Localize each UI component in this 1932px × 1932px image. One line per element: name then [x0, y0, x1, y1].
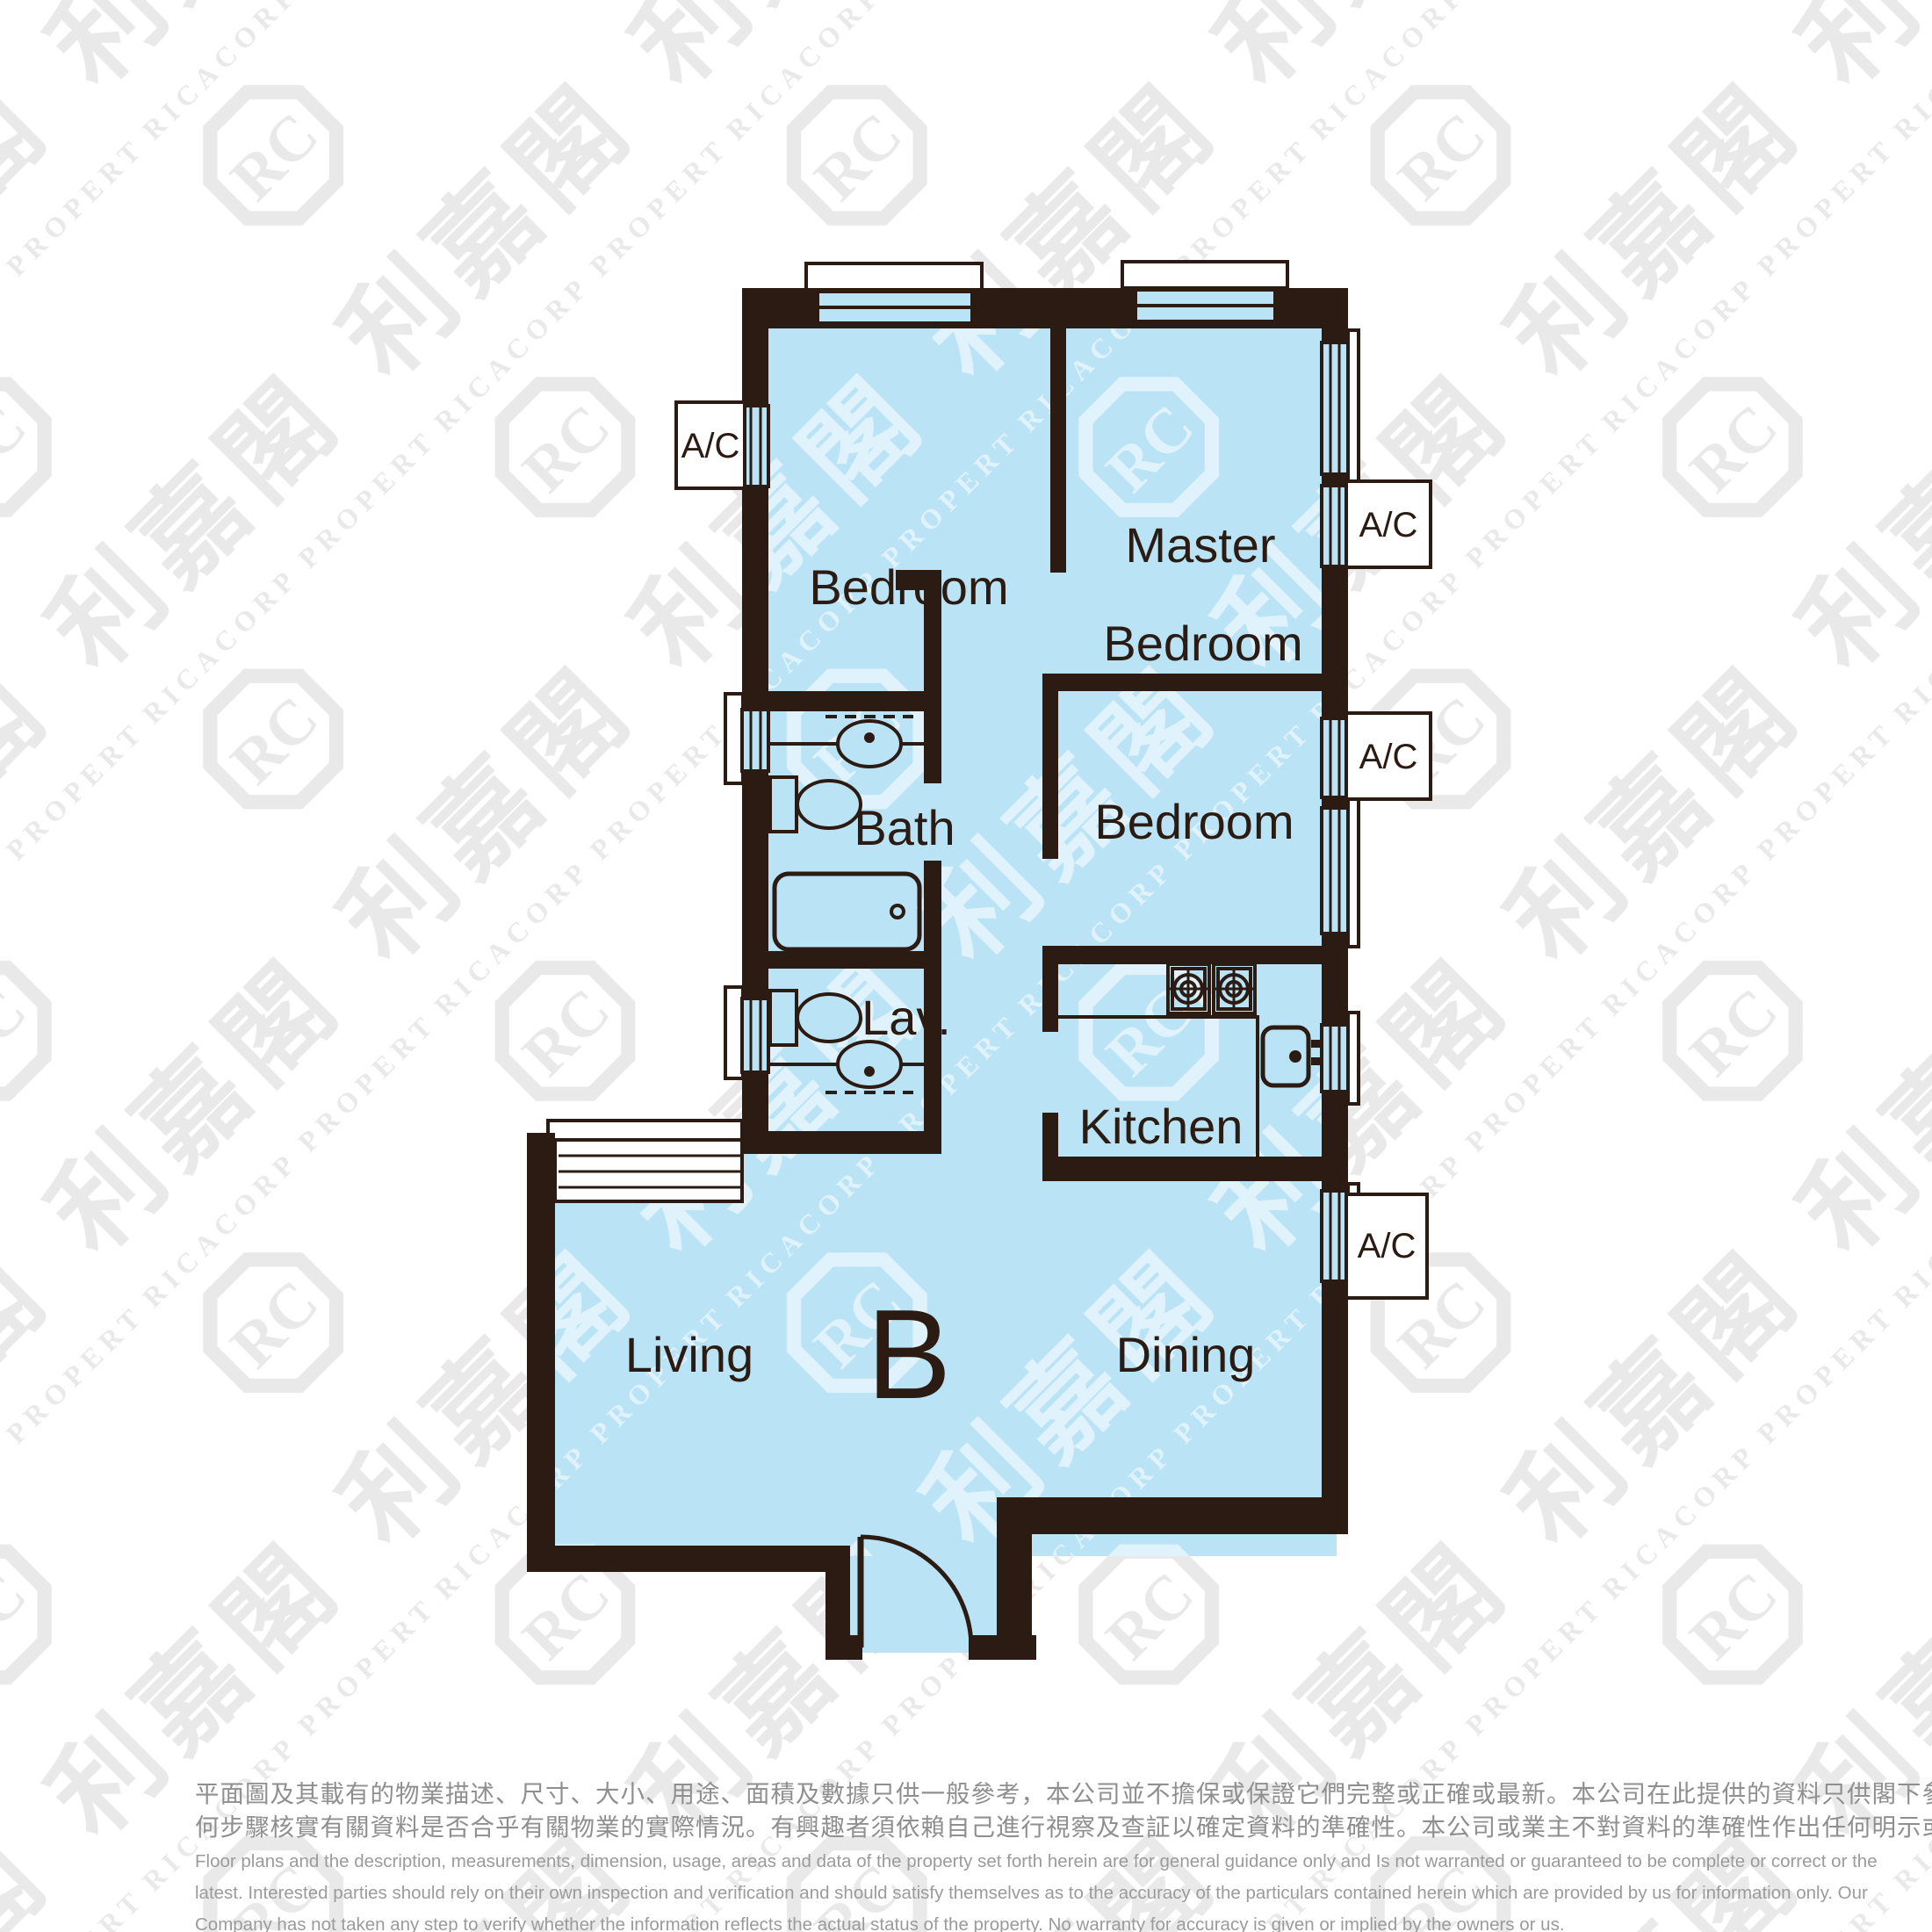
wall-vestibule-right	[997, 1534, 1032, 1660]
bath-toilet-tank	[770, 777, 797, 832]
disclaimer-en-line2: latest. Interested parties should rely o…	[195, 1883, 1868, 1903]
window-bedroom-mid-ac	[1322, 718, 1348, 797]
window-master	[1322, 342, 1348, 474]
disclaimer-zh-line1: 平面圖及其載有的物業描述、尺寸、大小、用途、面積及數據只供一般參考，本公司並不擔…	[195, 1780, 1932, 1808]
window-master-ac	[1322, 486, 1348, 566]
disclaimer-zh-line2: 何步驟核實有關資料是否合乎有關物業的實際情況。有興趣者須依賴自己進行視察及查証以…	[195, 1813, 1932, 1842]
window-dining-ac	[1322, 1191, 1348, 1281]
label-bedroom-mid: Bedroom	[1094, 794, 1294, 849]
ac-label: A/C	[1358, 1227, 1417, 1265]
label-dining: Dining	[1116, 1327, 1256, 1382]
label-master-line1: Master	[1125, 517, 1275, 573]
wall-lav-bottom	[742, 1131, 941, 1154]
lav-toilet-bowl	[797, 994, 861, 1042]
wall-living-bottom	[527, 1546, 825, 1572]
label-lav: Lav.	[861, 990, 951, 1045]
wall-bath-top	[742, 691, 933, 711]
wall-kitchen-bottom	[1042, 1157, 1348, 1181]
disclaimer-en-line1: Floor plans and the description, measure…	[195, 1851, 1878, 1871]
wall-bedroom-master-divider	[1050, 328, 1066, 573]
ac-label: A/C	[1359, 506, 1418, 544]
wall-bedroom-mid-left	[1042, 674, 1058, 859]
wall-kitchen-left-lower	[1042, 1113, 1058, 1157]
wall-dining-bottom	[997, 1497, 1348, 1534]
lav-toilet-tank	[770, 991, 797, 1045]
wall-kitchen-top	[1042, 946, 1348, 964]
label-bedroom-top: Bedroom	[809, 559, 1008, 615]
window-bedroom-mid	[1322, 808, 1348, 934]
bath-toilet-bowl	[797, 781, 861, 828]
wall-left-lower	[527, 1133, 555, 1572]
label-kitchen: Kitchen	[1079, 1099, 1244, 1154]
ac-label: A/C	[1359, 738, 1418, 776]
lav-sink	[838, 1042, 901, 1087]
window-lav	[742, 998, 768, 1072]
wall-kitchen-left-upper	[1042, 964, 1058, 1032]
label-unit: B	[867, 1283, 952, 1425]
wall-bath-lav-divider	[742, 951, 941, 969]
living-window-outer-frame	[548, 1121, 742, 1140]
label-living: Living	[625, 1327, 753, 1382]
window-frame-bedroom-top	[806, 263, 982, 290]
label-bath: Bath	[854, 800, 955, 855]
wall-master-bottom	[1042, 674, 1348, 691]
ac-label: A/C	[681, 427, 740, 465]
bath-sink	[838, 721, 901, 767]
bath-sink-faucet	[864, 732, 875, 743]
floor-plan-canvas: 利嘉閣 RICACORP PROPERTIES RC	[0, 0, 1932, 1932]
label-master-line2: Bedroom	[1103, 616, 1302, 671]
wall-vestibule-bottom-left	[825, 1635, 862, 1660]
window-bath	[742, 710, 768, 771]
window-kitchen	[1322, 1025, 1348, 1092]
disclaimer-en-line3: Company has not taken any step to verify…	[195, 1914, 1565, 1932]
lav-sink-faucet	[864, 1066, 875, 1077]
window-frame-master	[1122, 262, 1287, 288]
